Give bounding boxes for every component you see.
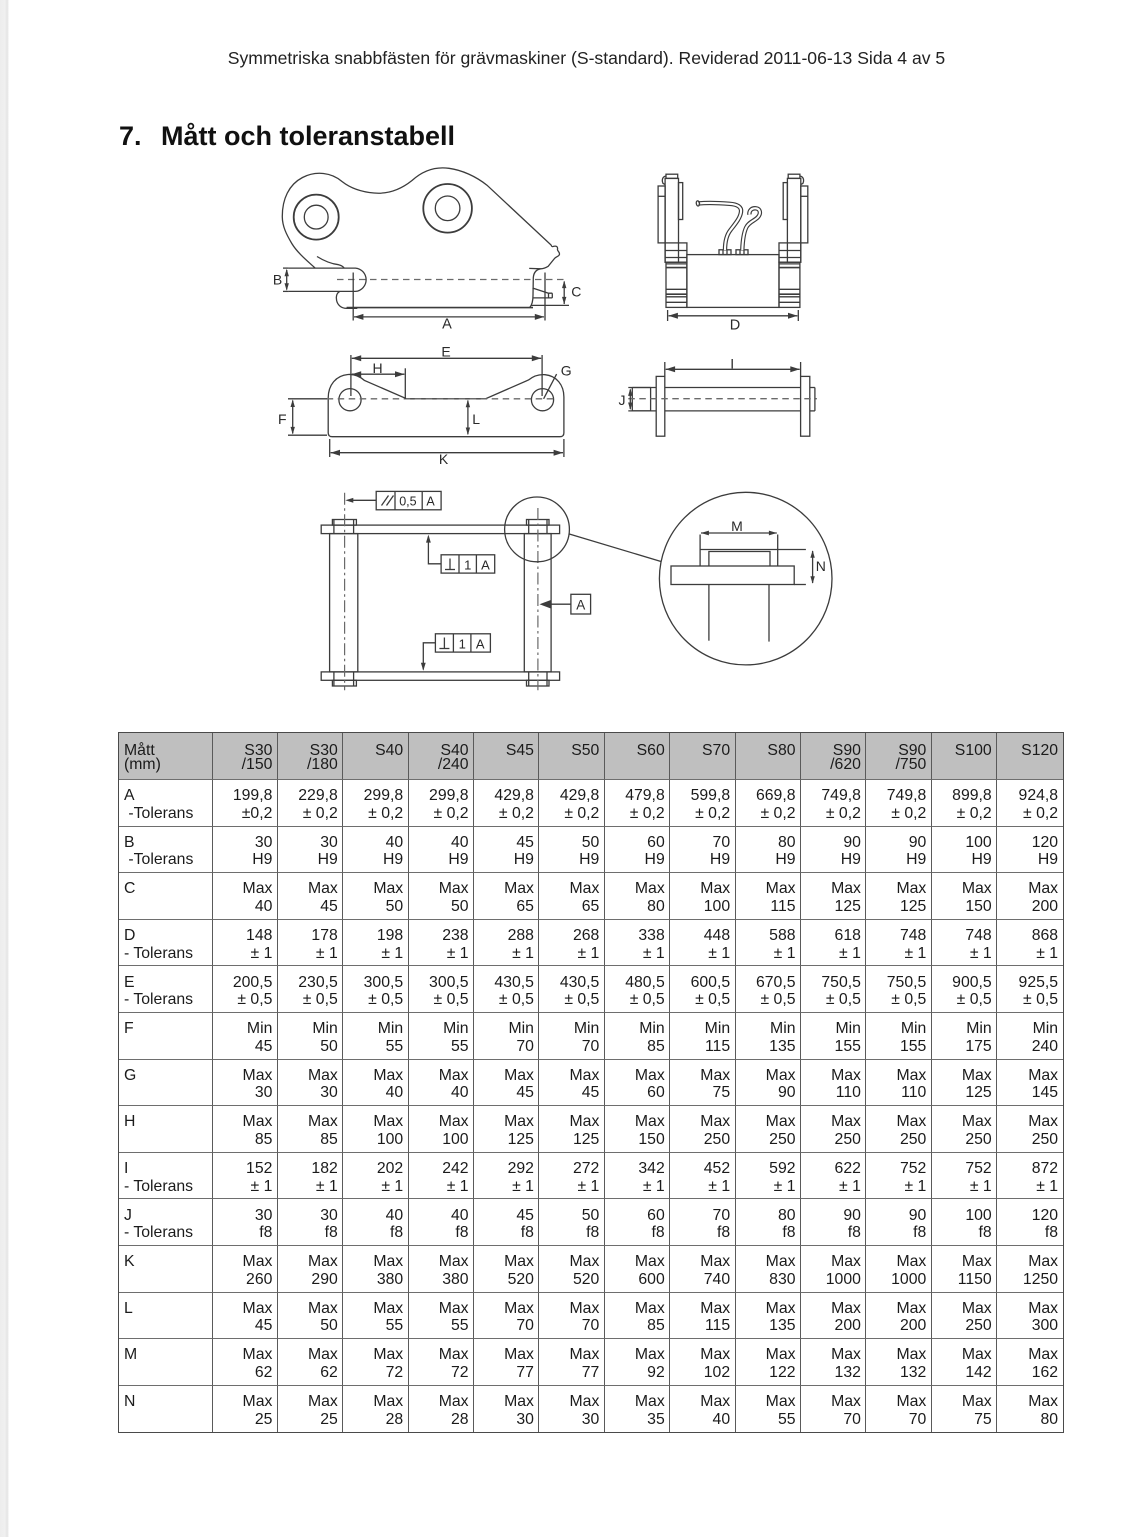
svg-text:M: M xyxy=(731,518,743,534)
svg-text:A: A xyxy=(576,598,585,613)
svg-text:H: H xyxy=(372,360,382,376)
svg-text:A: A xyxy=(476,636,485,651)
svg-text:A: A xyxy=(426,494,435,508)
svg-text:1: 1 xyxy=(459,636,466,651)
svg-text:J: J xyxy=(619,392,626,408)
svg-text:L: L xyxy=(472,411,480,427)
svg-text:F: F xyxy=(278,411,287,427)
svg-text:B: B xyxy=(273,272,282,288)
svg-text:K: K xyxy=(439,451,449,467)
svg-text:A: A xyxy=(481,557,490,572)
svg-text:N: N xyxy=(816,558,826,574)
svg-text:C: C xyxy=(571,283,581,299)
svg-text:D: D xyxy=(730,317,740,333)
svg-text:0,5: 0,5 xyxy=(399,494,416,508)
svg-text:G: G xyxy=(561,362,572,378)
svg-text:A: A xyxy=(442,317,452,333)
svg-text:I: I xyxy=(730,356,734,372)
svg-text:1: 1 xyxy=(464,557,471,572)
svg-text:E: E xyxy=(441,344,450,360)
